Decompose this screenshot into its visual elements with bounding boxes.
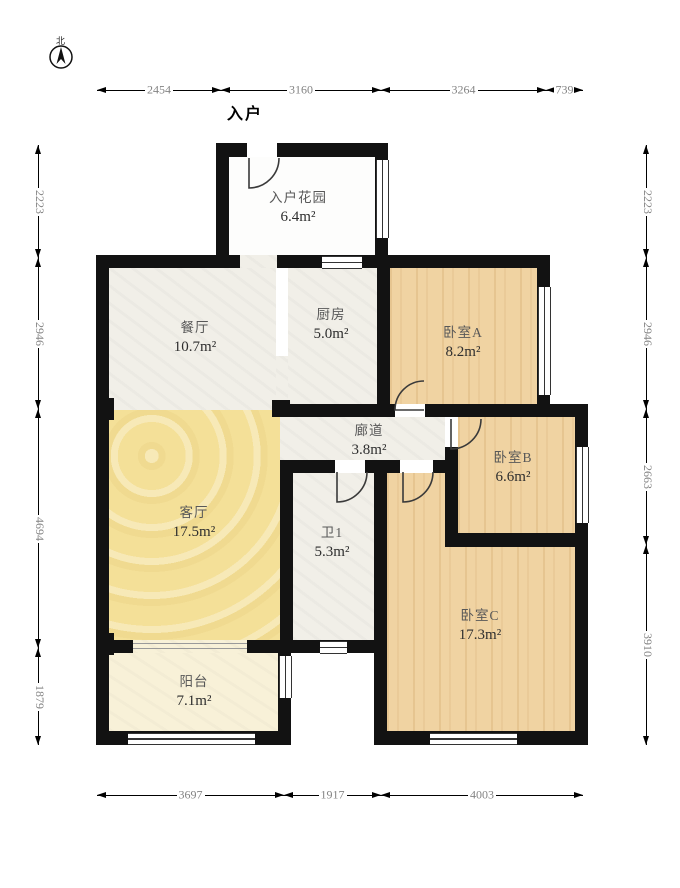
dim-value: 4694 xyxy=(32,515,46,543)
dim-value: 3264 xyxy=(450,84,478,98)
dim-value: 2454 xyxy=(145,84,173,98)
dim-value: 3160 xyxy=(287,84,315,98)
room-area: 17.3m² xyxy=(459,626,501,646)
room-label-living: 客厅 17.5m² xyxy=(173,503,215,543)
room-label-bath: 卫1 5.3m² xyxy=(315,523,350,563)
room-name: 卧室B xyxy=(493,448,532,468)
room-name: 廊道 xyxy=(352,421,387,441)
room-label-dining: 餐厅 10.7m² xyxy=(174,318,216,358)
entry-label: 入户 xyxy=(227,100,263,124)
dim-right-3: 2663 xyxy=(646,409,647,545)
wall xyxy=(96,255,240,268)
wall xyxy=(445,533,588,547)
window-bedroomC xyxy=(430,733,517,745)
room-area: 10.7m² xyxy=(174,338,216,358)
wall xyxy=(280,460,335,473)
wall xyxy=(377,255,390,417)
wall xyxy=(365,460,400,473)
room-label-kitchen: 厨房 5.0m² xyxy=(314,305,349,345)
wall xyxy=(277,143,388,157)
wall xyxy=(216,143,247,157)
room-area: 17.5m² xyxy=(173,523,215,543)
dim-value: 1917 xyxy=(319,789,347,803)
dim-top-1: 2454 xyxy=(97,90,221,91)
dim-bottom-2: 1917 xyxy=(284,795,381,796)
balcony-threshold-line xyxy=(133,643,247,644)
window-bedroomB xyxy=(576,447,589,523)
dim-left-1: 2223 xyxy=(38,145,39,258)
wall xyxy=(216,143,229,268)
balcony-door-gap-floor xyxy=(133,640,247,653)
room-name: 客厅 xyxy=(173,503,215,523)
dim-top-2: 3160 xyxy=(221,90,381,91)
room-area: 5.0m² xyxy=(314,325,349,345)
wall xyxy=(280,460,293,653)
room-area: 6.4m² xyxy=(269,208,327,228)
window-balcony-side xyxy=(279,656,292,698)
room-label-bedroomA: 卧室A 8.2m² xyxy=(443,323,483,363)
room-area: 7.1m² xyxy=(177,692,212,712)
room-label-corridor: 廊道 3.8m² xyxy=(352,421,387,461)
room-name: 卧室C xyxy=(459,606,501,626)
dim-left-3: 4694 xyxy=(38,409,39,648)
wall xyxy=(425,404,588,417)
room-name: 餐厅 xyxy=(174,318,216,338)
dim-value: 2946 xyxy=(32,320,46,348)
compass-icon xyxy=(50,46,72,68)
room-area: 3.8m² xyxy=(352,441,387,461)
dim-right-4: 3910 xyxy=(646,545,647,745)
window-garden xyxy=(376,160,389,238)
room-area: 8.2m² xyxy=(443,343,483,363)
entry-gap-floor xyxy=(238,255,277,268)
dim-value: 3697 xyxy=(177,789,205,803)
room-bedroomC-entry-floor xyxy=(387,473,445,547)
room-label-garden: 入户花园 6.4m² xyxy=(269,188,327,228)
dim-bottom-3: 4003 xyxy=(381,795,583,796)
wall xyxy=(272,404,395,417)
window-balcony xyxy=(128,733,255,745)
floorplan: 北 入户花园 6.4m² 餐厅 10.7m² 厨房 5.0m² 卧室A 8.2m… xyxy=(0,0,680,888)
window-bath xyxy=(320,641,347,654)
dim-value: 2223 xyxy=(640,188,654,216)
room-label-bedroomC: 卧室C 17.3m² xyxy=(459,606,501,646)
dim-top-3: 3264 xyxy=(381,90,546,91)
dim-value: 2663 xyxy=(640,463,654,491)
wall xyxy=(390,255,550,268)
dim-value: 4003 xyxy=(468,789,496,803)
dim-value: 2223 xyxy=(32,188,46,216)
dim-top-4: 739 xyxy=(546,90,583,91)
wall xyxy=(96,640,133,653)
room-area: 6.6m² xyxy=(493,468,532,488)
dim-value: 1879 xyxy=(32,683,46,711)
dim-value: 2946 xyxy=(640,320,654,348)
balcony-threshold-line xyxy=(133,648,247,649)
dim-value: 3910 xyxy=(640,631,654,659)
wall xyxy=(374,460,387,745)
room-name: 卫1 xyxy=(315,523,350,543)
compass-north-label: 北 xyxy=(56,34,65,47)
room-label-bedroomB: 卧室B 6.6m² xyxy=(493,448,532,488)
room-label-balcony: 阳台 7.1m² xyxy=(177,672,212,712)
window-kitchen xyxy=(322,256,362,269)
dim-right-2: 2946 xyxy=(646,258,647,409)
wall xyxy=(96,255,109,745)
dim-left-4: 1879 xyxy=(38,648,39,745)
room-name: 卧室A xyxy=(443,323,483,343)
dim-right-1: 2223 xyxy=(646,145,647,258)
dim-value: 739 xyxy=(554,84,576,98)
dim-bottom-1: 3697 xyxy=(97,795,284,796)
room-name: 入户花园 xyxy=(269,188,327,208)
room-area: 5.3m² xyxy=(315,543,350,563)
wall xyxy=(96,398,114,420)
room-name: 阳台 xyxy=(177,672,212,692)
wall xyxy=(433,460,458,473)
room-name: 厨房 xyxy=(314,305,349,325)
dim-left-2: 2946 xyxy=(38,258,39,409)
window-bedroomA xyxy=(538,287,551,395)
